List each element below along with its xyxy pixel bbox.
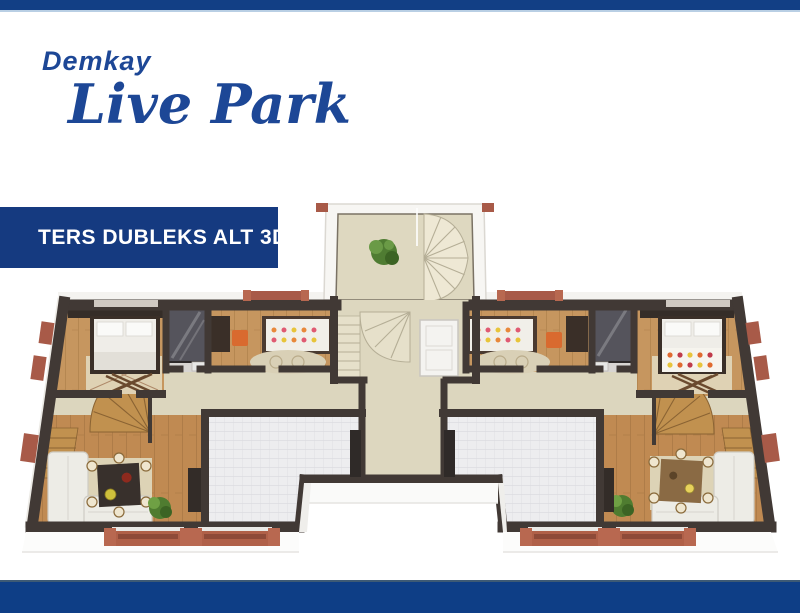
balcony-planter [104, 527, 192, 546]
chair-left [232, 330, 248, 346]
door-frame-left [350, 430, 361, 477]
brick-accent [316, 203, 328, 212]
door-frame-right [444, 430, 455, 477]
balcony-planter [520, 527, 610, 546]
desk-left [210, 316, 230, 352]
balconies [104, 527, 696, 546]
balcony-planter [190, 527, 280, 546]
tile-room-right-floor [443, 415, 600, 528]
tile-room-left-floor [205, 415, 362, 528]
coffee-table-left [97, 463, 141, 507]
floorplan-3d-render [0, 0, 800, 613]
footer-bar [0, 580, 800, 613]
central-stairwell [316, 203, 494, 302]
bathroom-left-fixtures [168, 308, 206, 371]
dining-table-right [659, 459, 703, 503]
page: Demkay Live Park TERS DUBLEKS ALT 3D [0, 0, 800, 613]
balcony-planter [608, 527, 696, 546]
desk-right [566, 316, 588, 352]
brick-accent [482, 203, 494, 212]
chair-right [546, 332, 562, 348]
bathroom-right-fixtures [594, 306, 632, 371]
